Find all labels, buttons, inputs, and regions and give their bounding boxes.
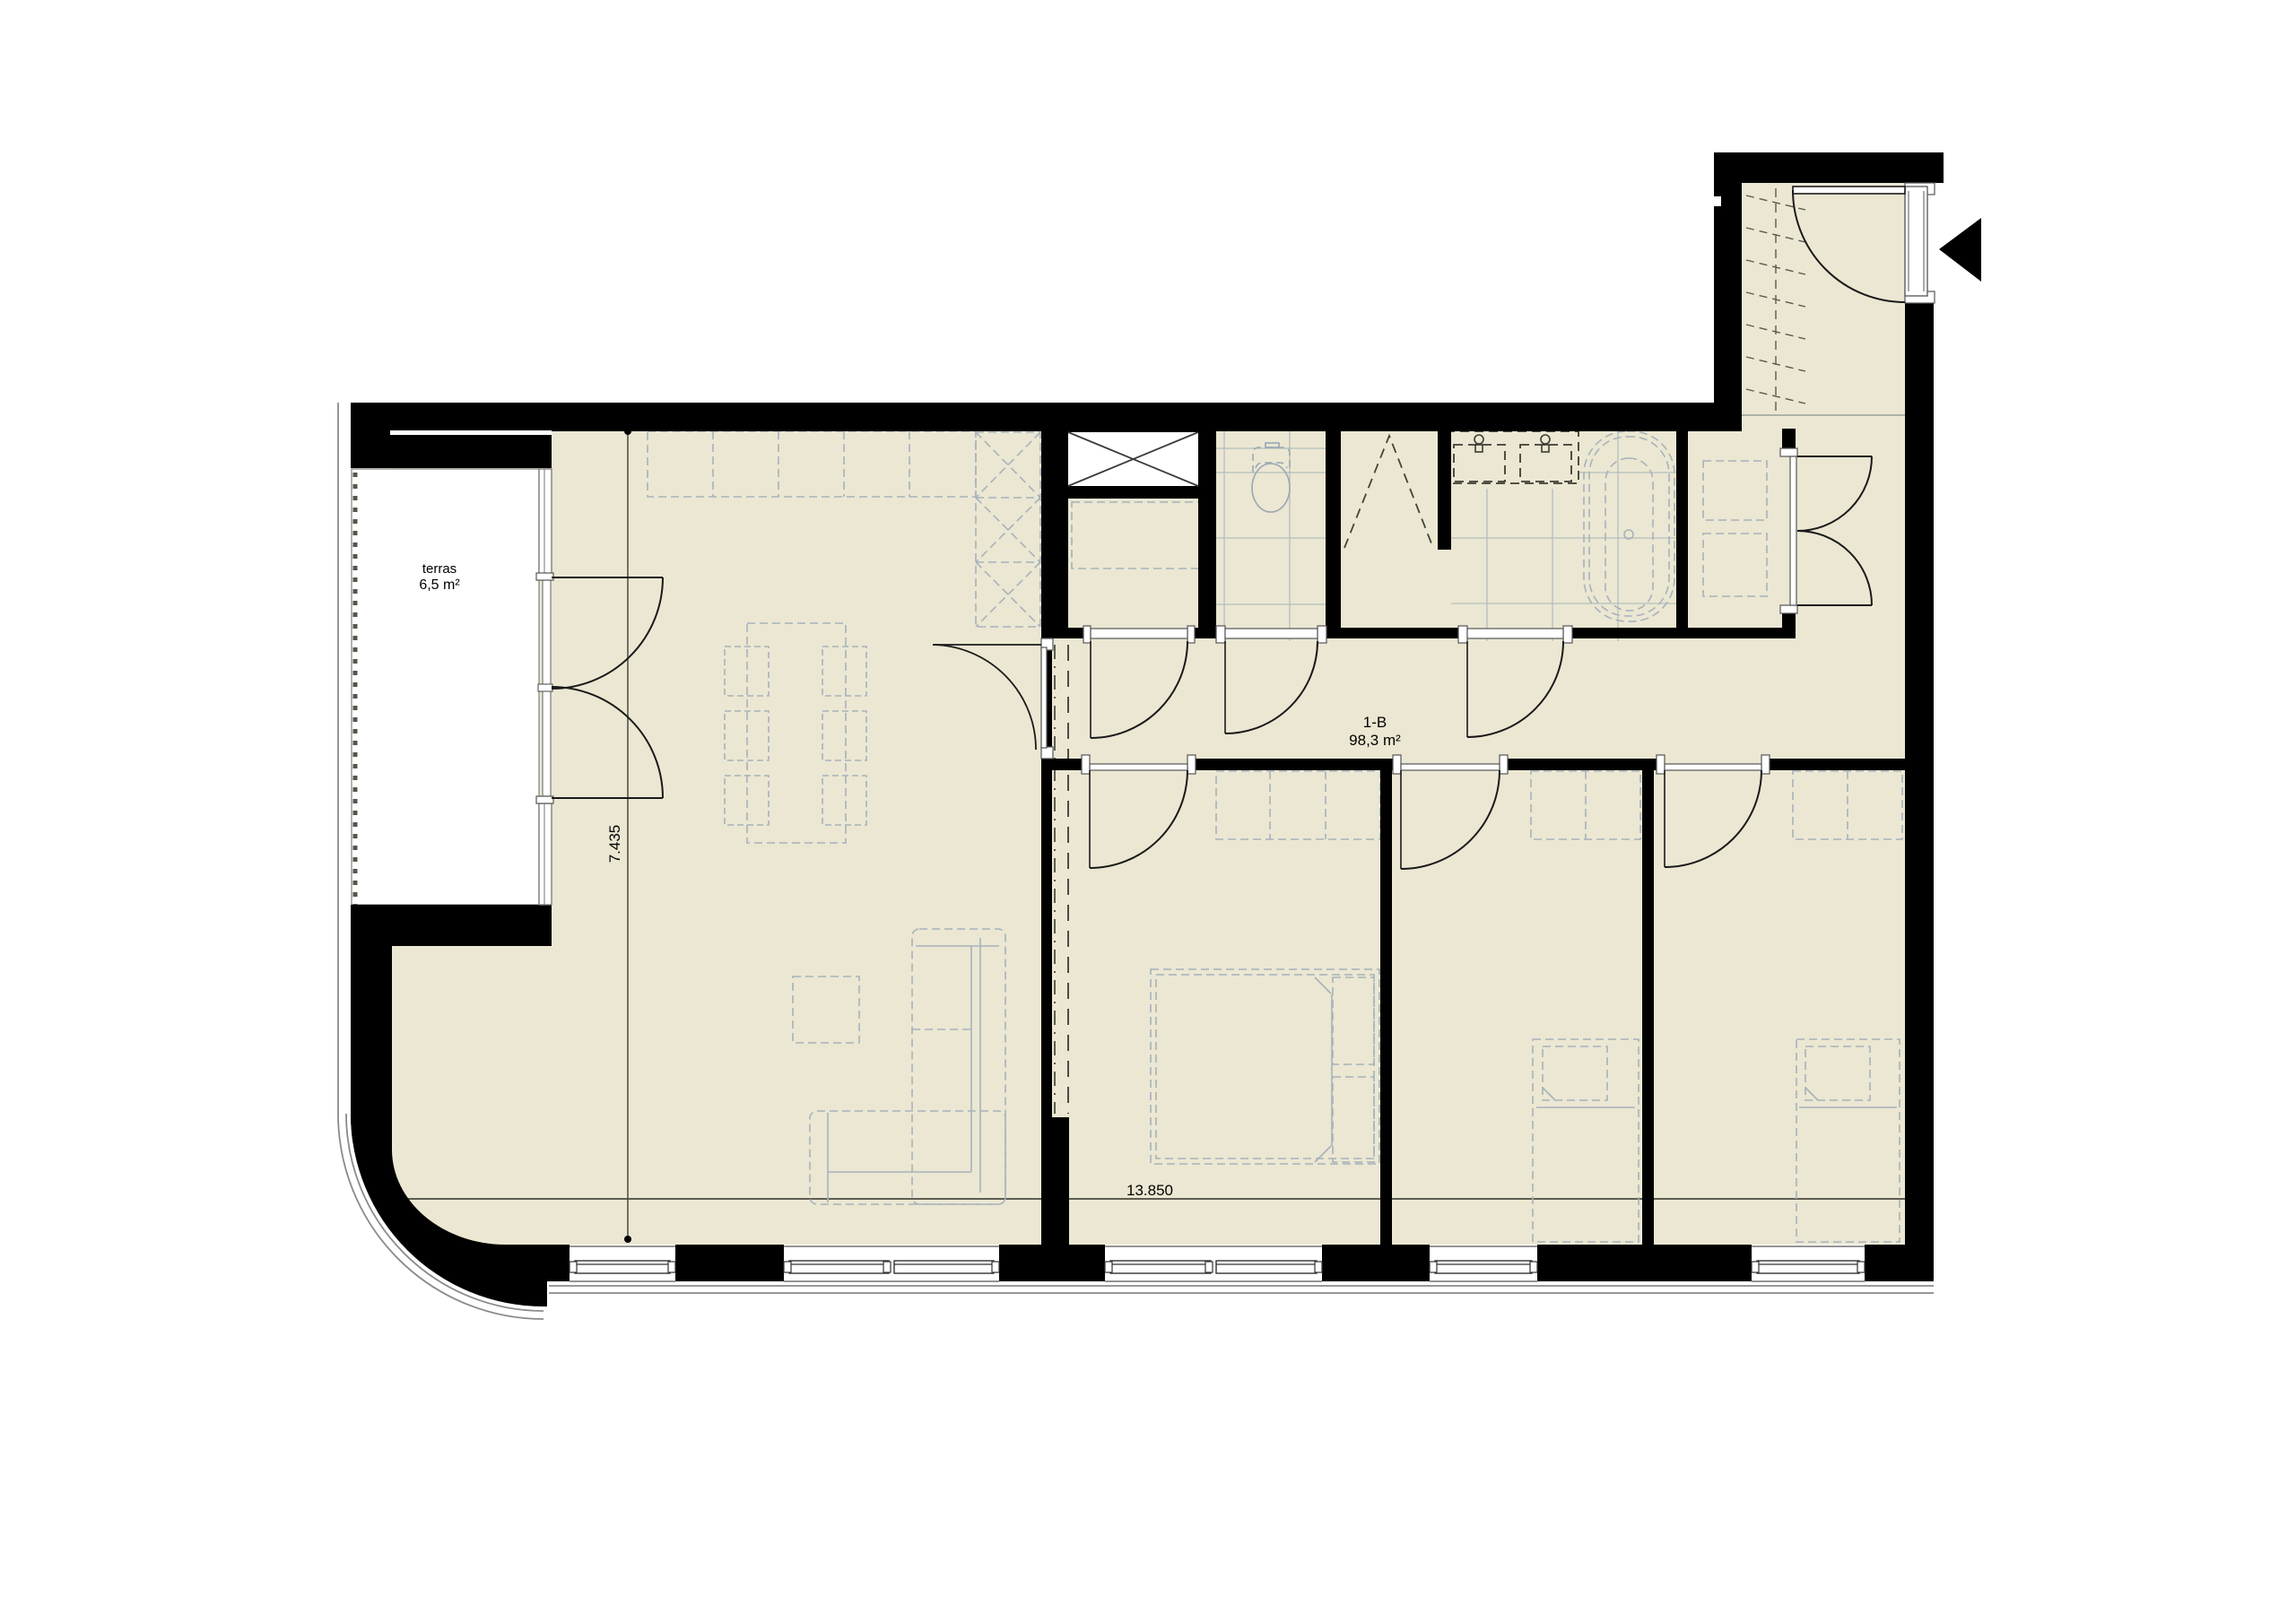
- svg-text:6,5 m²: 6,5 m²: [419, 577, 460, 593]
- svg-text:13.850: 13.850: [1126, 1182, 1173, 1199]
- svg-text:terras: terras: [422, 561, 457, 577]
- svg-text:98,3 m²: 98,3 m²: [1349, 732, 1401, 749]
- svg-text:7.435: 7.435: [606, 825, 623, 864]
- svg-text:1-B: 1-B: [1363, 714, 1387, 731]
